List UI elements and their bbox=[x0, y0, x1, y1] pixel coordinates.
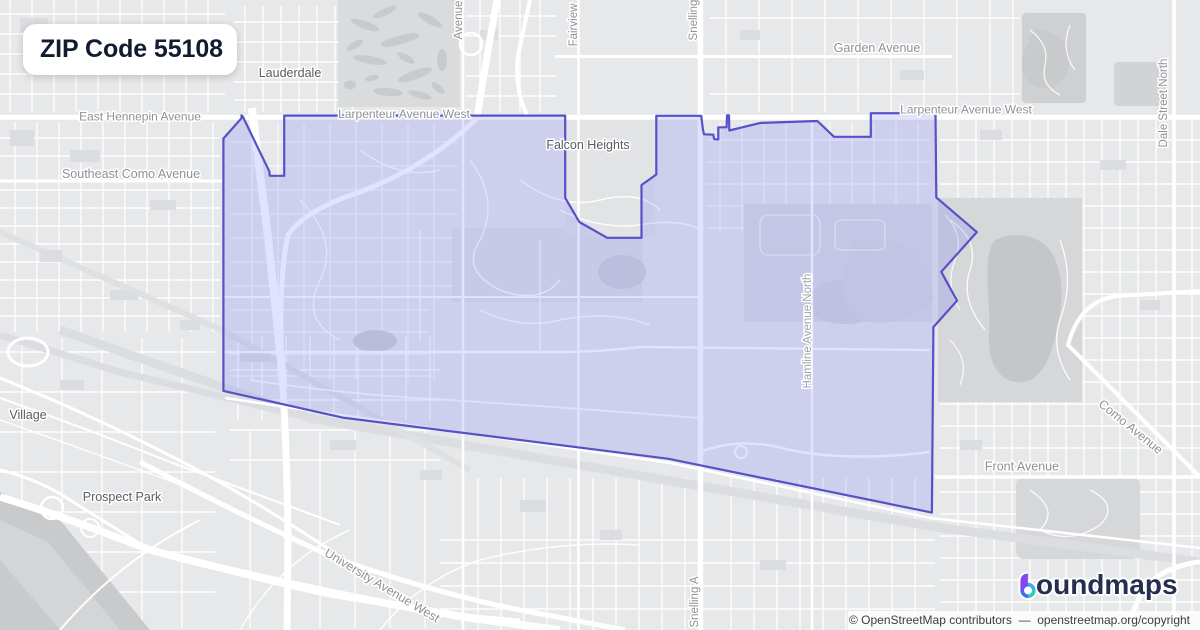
svg-text:Snelling A: Snelling A bbox=[689, 576, 701, 627]
svg-text:Dale Street North: Dale Street North bbox=[1158, 59, 1170, 148]
svg-text:Lauderdale: Lauderdale bbox=[259, 66, 322, 80]
svg-text:Larpenteur Avenue West: Larpenteur Avenue West bbox=[338, 107, 470, 121]
svg-text:Prospect Park: Prospect Park bbox=[83, 490, 162, 504]
svg-text:Fairview: Fairview bbox=[568, 3, 580, 47]
svg-text:Front Avenue: Front Avenue bbox=[985, 460, 1059, 474]
svg-text:East Hennepin Avenue: East Hennepin Avenue bbox=[79, 110, 201, 124]
svg-text:Larpenteur Avenue West: Larpenteur Avenue West bbox=[900, 103, 1032, 117]
svg-text:Southeast Como Avenue: Southeast Como Avenue bbox=[62, 167, 200, 181]
svg-text:Village: Village bbox=[9, 408, 46, 422]
svg-text:Avenue: Avenue bbox=[453, 1, 465, 40]
svg-text:Snelling: Snelling bbox=[688, 0, 700, 40]
svg-text:Falcon Heights: Falcon Heights bbox=[546, 138, 629, 152]
svg-text:Garden Avenue: Garden Avenue bbox=[834, 41, 921, 55]
svg-text:Hamline Avenue North: Hamline Avenue North bbox=[802, 274, 814, 389]
